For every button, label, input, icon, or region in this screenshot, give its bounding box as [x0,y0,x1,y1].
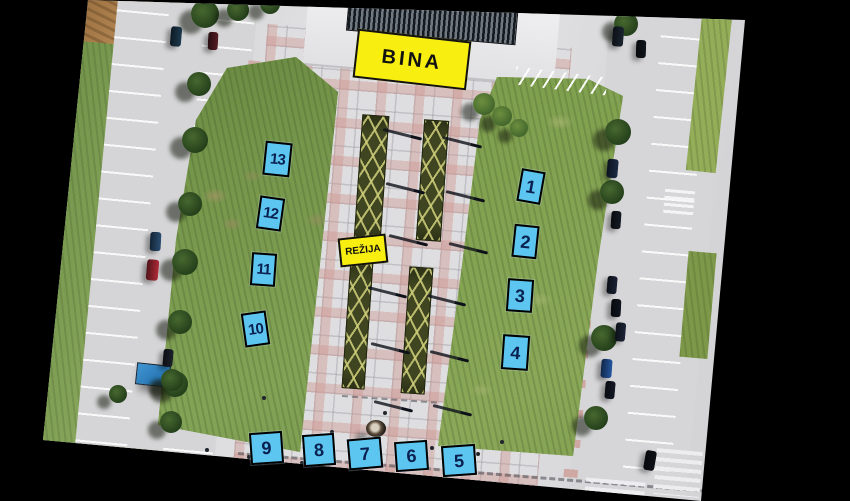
parked-car [611,299,622,317]
bush [492,106,512,126]
crosswalk-bottom-right [653,448,703,498]
tree [187,72,211,96]
tree [191,0,219,28]
zone-marker-8: 8 [302,433,336,467]
annotated-aerial-map: BINA REŽIJA 13121110123498765 [0,0,850,501]
parked-car [606,276,618,295]
parked-car [145,259,159,281]
parked-car [606,158,619,178]
pedestrian [500,440,504,444]
pedestrian [430,446,434,450]
parked-car [600,358,612,378]
tree [172,249,198,275]
parked-car [612,26,624,47]
tree [178,192,202,216]
tree [600,180,624,204]
tree [109,385,127,403]
parked-car [636,40,647,58]
control-label: REŽIJA [338,233,389,267]
pedestrian [205,448,209,452]
tree [168,310,192,334]
crosswalk-bottom-right [584,477,645,500]
statue [366,420,386,437]
zone-marker-5: 5 [441,443,477,476]
tree [591,325,617,351]
zone-marker-10: 10 [240,310,269,347]
tree [160,411,182,433]
zone-marker-13: 13 [262,141,292,178]
zone-marker-7: 7 [347,436,384,470]
tree [161,369,183,391]
roof-block [529,0,595,13]
pedestrian [476,452,480,456]
parked-car [614,322,626,342]
parked-car [149,231,161,251]
zone-marker-4: 4 [500,334,529,371]
pedestrian [262,396,266,400]
tree [605,119,631,145]
parked-car [610,211,621,230]
tree [182,127,208,153]
parked-car [208,32,219,50]
pedestrian [383,411,387,415]
bottom-tree-shadow-band [50,462,100,492]
zone-marker-12: 12 [255,195,284,231]
zone-marker-2: 2 [511,223,539,258]
tree [227,0,249,21]
zone-marker-3: 3 [506,278,534,313]
parked-car [604,381,616,400]
zone-marker-6: 6 [393,440,428,472]
zone-marker-11: 11 [249,252,276,287]
bush [510,119,528,137]
zone-marker-9: 9 [248,431,283,465]
tree [584,406,608,430]
parked-car [162,349,174,368]
parked-car [170,26,183,47]
crosswalk-mid-right [663,189,695,218]
